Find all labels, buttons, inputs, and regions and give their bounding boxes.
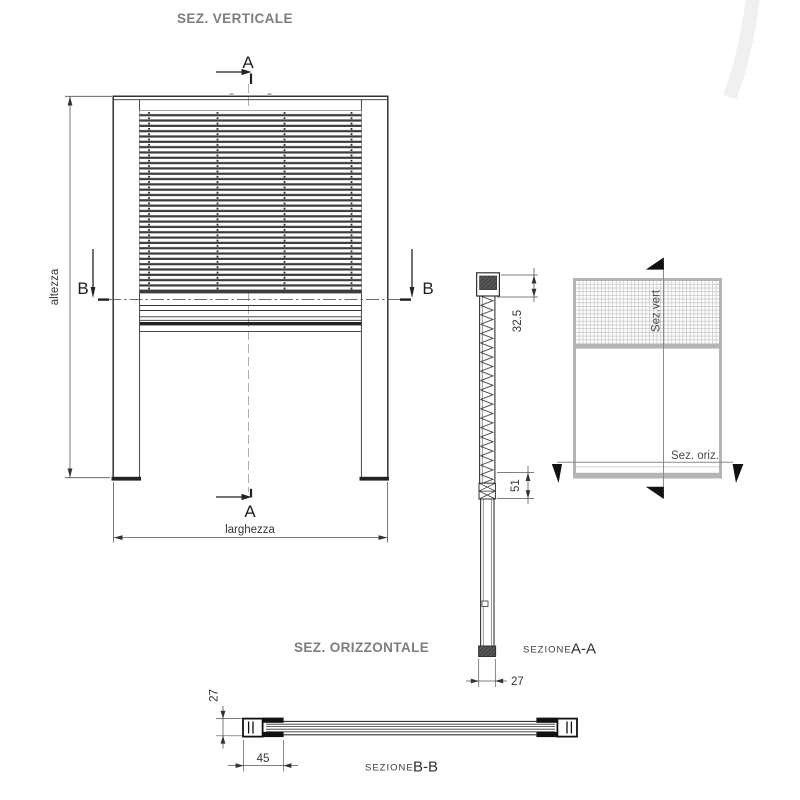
cut-flag-icon (646, 257, 664, 269)
section-bb-title: SEZ. ORIZZONTALE (294, 640, 429, 655)
dim-arrow-up-icon (532, 275, 537, 283)
minimap-mesh-bottom-band (573, 344, 722, 349)
section-cut-a-top: A (216, 53, 254, 84)
bb-left-block-bottom (263, 732, 284, 737)
dim-arrow-down-icon (532, 289, 537, 297)
bottom-bar (140, 306, 362, 332)
dim-arrow-right-icon (379, 535, 388, 540)
dim-headbox: 32.5 (497, 268, 538, 332)
section-cut-b-right: B (400, 249, 434, 300)
watermark-swoosh (730, 0, 754, 97)
dim-arrow-right-icon (471, 679, 479, 684)
section-aa-caption-name: A-A (571, 641, 596, 658)
section-letter-b-left: B (77, 279, 88, 298)
dim-arrow-up-icon (526, 473, 531, 481)
bb-right-block-top (536, 718, 557, 723)
dim-arrow-up-icon (221, 736, 226, 744)
section-aa-caption-prefix: SEZIONE (523, 645, 572, 656)
dim-roller-value: 51 (510, 479, 522, 492)
minimap: Sez.vert Sez. oriz. (552, 257, 744, 499)
dim-profile-depth: 27 (466, 659, 524, 688)
section-bb-caption: SEZIONE B-B (365, 759, 438, 776)
cut-flag-icon (646, 487, 664, 499)
pleated-mesh-section (479, 296, 495, 483)
dim-profile-depth-value: 27 (511, 676, 524, 688)
section-letter-a-bottom: A (244, 502, 256, 521)
section-letter-a-top: A (242, 53, 254, 72)
section-cut-a-bottom: A (216, 489, 256, 521)
dim-end-zone-value: 45 (257, 753, 270, 765)
left-rail-foot (112, 477, 142, 481)
top-mark-left (230, 93, 234, 96)
section-bb-view: SEZ. ORIZZONTALE (209, 640, 578, 776)
bottom-cap (479, 646, 496, 657)
dim-end-zone: 45 (228, 740, 298, 772)
section-cut-b-left: B (77, 249, 109, 300)
minimap-vert-label: Sez.vert (651, 289, 663, 332)
section-bb-caption-name: B-B (413, 759, 438, 776)
right-rail-foot (360, 477, 390, 481)
arrow-down-icon (410, 287, 415, 298)
dim-roller: 51 (497, 466, 534, 504)
dim-arrow-left-icon (283, 763, 291, 768)
head-box (477, 273, 500, 296)
dim-arrow-left-icon (114, 535, 123, 540)
dim-altezza-label: altezza (49, 268, 61, 305)
dim-headbox-value: 32.5 (512, 310, 524, 332)
section-bb-caption-prefix: SEZIONE (365, 763, 414, 774)
dim-bar-height: 27 (209, 689, 243, 748)
mesh-slats (140, 111, 362, 294)
roller-box (479, 483, 495, 499)
dim-arrow-down-icon (526, 490, 531, 498)
bb-left-block-top (263, 718, 284, 723)
dim-arrow-down-icon (221, 711, 226, 719)
minimap-bottom-band (573, 473, 722, 479)
guide-channel (481, 499, 494, 646)
bb-right-block-bottom (536, 732, 557, 737)
arrow-down-icon (91, 287, 96, 298)
dim-bar-height-value: 27 (209, 689, 221, 702)
front-view: SEZ. VERTICALE A (49, 11, 434, 543)
dim-arrow-down-icon (68, 469, 73, 478)
drawing-page: SEZ. VERTICALE A (0, 0, 800, 800)
minimap-horiz-label: Sez. oriz. (671, 450, 719, 462)
section-letter-b-right: B (422, 279, 433, 298)
technical-drawing: SEZ. VERTICALE A (0, 0, 800, 800)
dim-larghezza-label: larghezza (225, 524, 275, 536)
section-aa-caption: SEZIONE A-A (523, 641, 596, 658)
dim-arrow-left-icon (495, 679, 503, 684)
minimap-mesh-area (576, 281, 719, 345)
top-mark-right (268, 93, 272, 96)
cut-flag-icon (552, 464, 562, 483)
cut-flag-icon (733, 464, 744, 483)
dim-arrow-up-icon (68, 97, 73, 106)
bb-bar (243, 718, 577, 738)
dim-arrow-right-icon (236, 763, 244, 768)
front-view-title: SEZ. VERTICALE (177, 11, 293, 26)
